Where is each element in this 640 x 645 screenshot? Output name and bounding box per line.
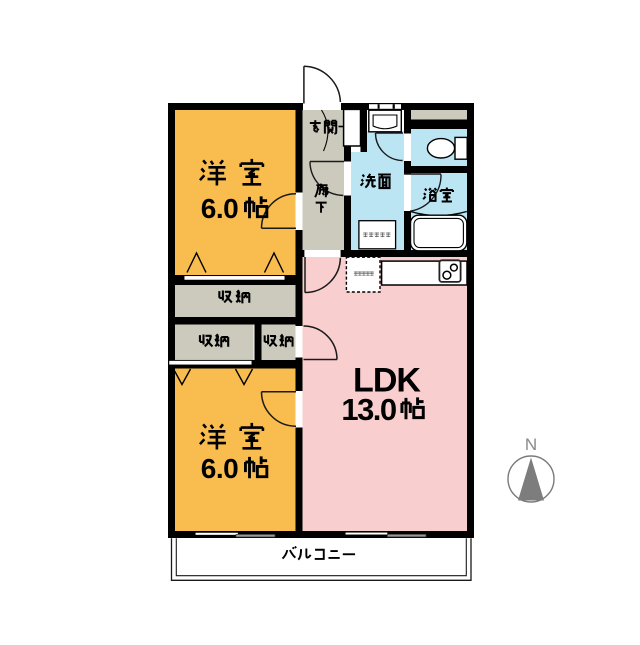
svg-text:6.0: 6.0 xyxy=(201,453,238,484)
svg-text:6.0: 6.0 xyxy=(201,193,238,224)
svg-text:N: N xyxy=(525,435,537,454)
svg-text:13.0: 13.0 xyxy=(341,392,396,427)
